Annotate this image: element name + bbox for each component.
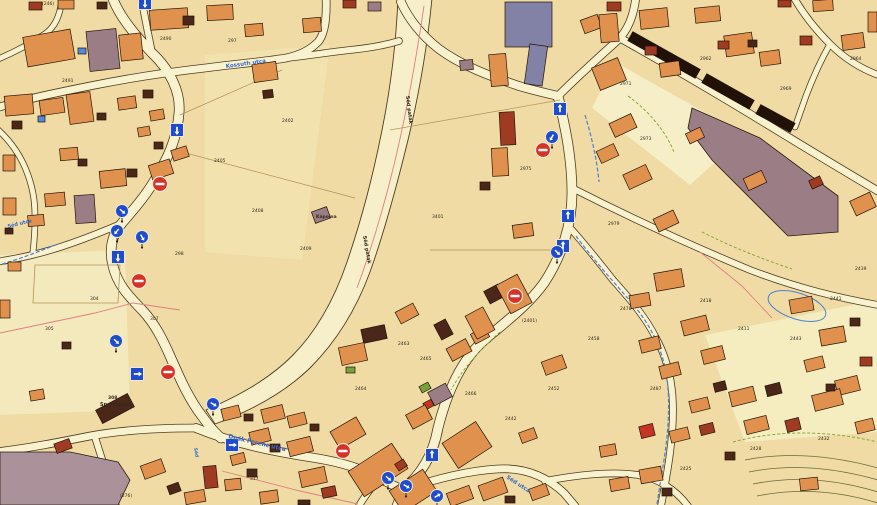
building [244,414,253,421]
parcel-number: 2408 [252,208,264,214]
building [78,159,87,166]
building [62,342,71,349]
parcel-number: 2478 [620,306,632,312]
parcel-number: 2405 [214,158,226,164]
building [298,500,310,505]
building [799,477,818,491]
parcel-number: 2964 [850,56,862,62]
building [813,0,834,12]
building [78,48,86,54]
building [259,490,278,504]
building [645,46,657,55]
building [127,169,137,177]
no-entry-sign-icon [153,177,168,192]
parcel-number: 2464 [355,386,367,392]
building [480,182,490,190]
building [183,16,194,25]
parcel-number: 2439 [855,266,867,272]
building [748,40,757,47]
parcel-number: 298 [175,251,184,257]
parcel-number: 297 [228,38,237,44]
building [512,223,534,239]
one-way-sign-icon [554,103,567,116]
building [29,389,45,401]
building [99,169,127,189]
building [489,53,509,86]
parcel-number: 2452 [548,386,560,392]
building [310,424,319,431]
parcel-number: 2428 [750,446,762,452]
building [203,465,218,488]
parcel-number: 2432 [818,436,830,442]
street-label: Kápolna [316,213,337,220]
map-viewport: Deák Ferenc utcaKossuth utcaSéd patakSéd… [0,0,877,505]
parcel-number: 2487 [650,386,662,392]
building [143,90,153,98]
building [39,97,65,115]
one-way-sign-icon [562,210,575,223]
building [718,41,729,49]
parcel-number: 2458 [588,336,600,342]
parcel-number: 304 [90,296,99,302]
parcel-number: 2975 [520,166,532,172]
building [368,2,381,11]
building [659,61,681,78]
building [119,33,144,61]
building [607,2,621,11]
building [8,262,21,271]
building [224,478,241,491]
building [343,0,356,8]
building [505,2,552,47]
parcel-number: 2490 [160,36,172,42]
building [725,452,735,460]
building [860,357,872,366]
parcel-number: (276) [120,493,132,499]
no-entry-sign-icon [536,143,551,158]
building [3,155,15,171]
building [58,0,74,9]
building [499,112,516,146]
parcel-number: 307 [150,316,159,322]
building [460,59,474,70]
parcel-number: 2491 [62,78,74,84]
building [262,89,273,98]
building [137,126,150,137]
building [800,36,812,45]
building [38,116,45,122]
building [0,300,10,318]
parcel-number: 2973 [640,136,652,142]
parcel-number: 3401 [432,214,444,220]
one-way-sign-icon [426,449,439,462]
parcel-number: 2443 [790,336,802,342]
parcel-number: 2409 [300,246,312,252]
parcel-number: 2411 [738,326,750,332]
building [868,12,877,32]
cadastral-map: Deák Ferenc utcaKossuth utcaSéd patakSéd… [0,0,877,505]
building [149,109,165,121]
building [29,2,42,10]
building [778,0,791,7]
street-label: 308 [108,395,117,401]
parcel-number: 2969 [780,86,792,92]
parcel-number: 2442 [505,416,517,422]
no-entry-sign-icon [508,289,523,304]
building [207,4,234,20]
building [44,192,65,207]
building [759,50,781,67]
parcel-number: 2979 [608,221,620,227]
building [346,367,355,373]
building [841,33,865,51]
building [97,113,106,120]
parcel-number: 2418 [700,298,712,304]
one-way-sign-icon [112,251,125,264]
building [599,13,619,42]
building [491,148,508,177]
parcel-number: 2465 [420,356,432,362]
parcel-number: 2962 [700,56,712,62]
building [60,147,79,161]
parcel-number: 305 [45,326,54,332]
parcel-number: 2402 [282,118,294,124]
one-way-sign-icon [131,368,144,381]
building [154,142,163,149]
street-label: Sporttelep [100,402,130,408]
building [74,194,96,223]
parcel-number: (246) [42,1,54,7]
one-way-sign-icon [171,124,184,137]
building [599,444,617,458]
building [505,496,515,503]
building [639,8,669,30]
parcel-number: 2441 [830,296,842,302]
building [302,17,321,33]
building [662,488,672,496]
parcel-number: 2971 [620,81,632,87]
parcel-number: 2425 [680,466,692,472]
building [4,94,34,116]
building [694,6,720,24]
building [850,318,860,326]
parcel-number: 2463 [398,341,410,347]
one-way-sign-icon [139,0,152,10]
no-entry-sign-icon [336,444,351,459]
building [117,96,136,110]
building [86,29,120,72]
parcel-number: (2401) [522,318,537,324]
parcel-number: 317 [250,476,259,482]
no-entry-sign-icon [132,274,147,289]
building [12,121,22,129]
building [3,198,16,215]
building [245,23,264,37]
building [826,384,835,391]
building [247,469,257,477]
building [66,91,94,124]
building [97,2,107,9]
no-entry-sign-icon [161,365,176,380]
parcel-number: 2466 [465,391,477,397]
